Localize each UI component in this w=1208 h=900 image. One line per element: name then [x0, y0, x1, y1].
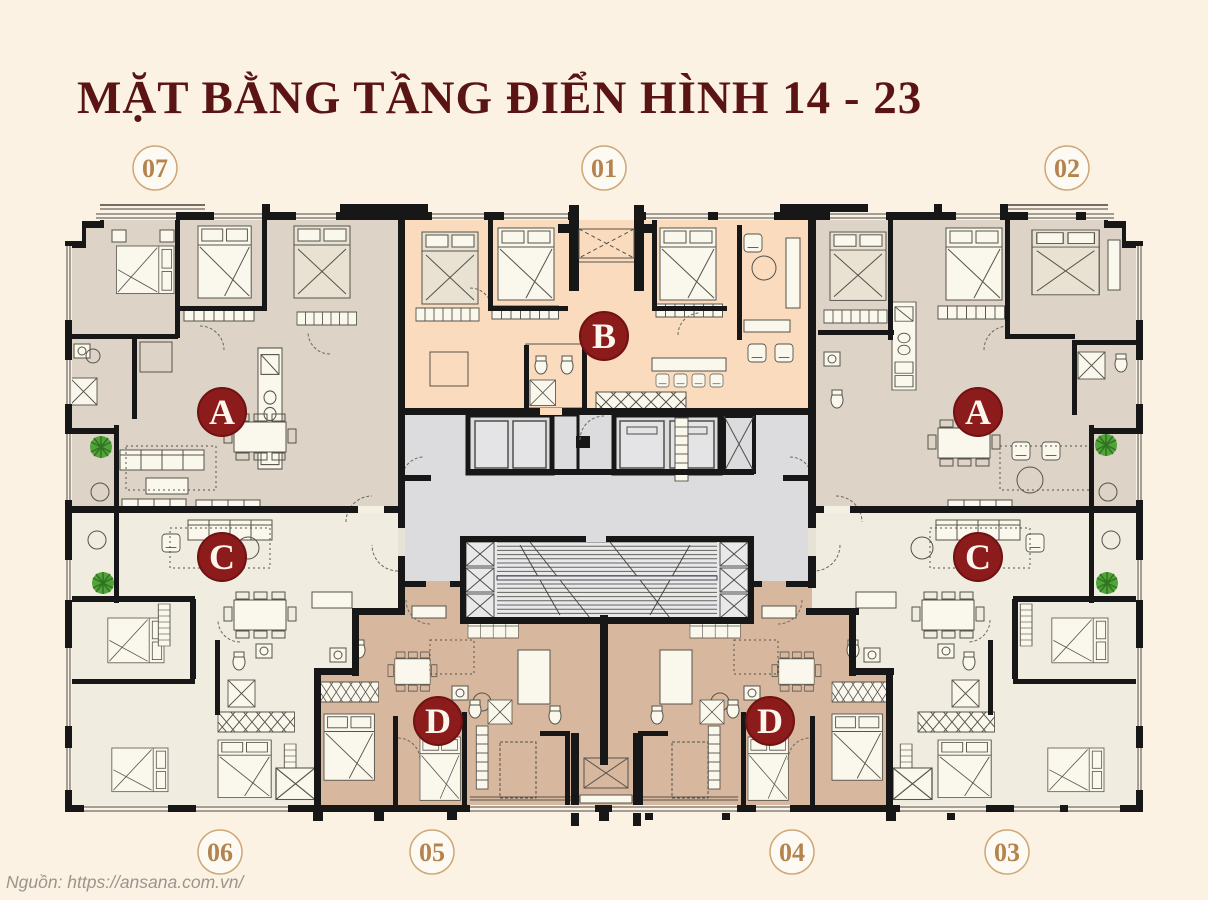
svg-text:D: D	[757, 701, 783, 741]
svg-text:07: 07	[142, 154, 168, 183]
svg-text:B: B	[592, 316, 616, 356]
svg-text:06: 06	[207, 838, 233, 867]
svg-text:C: C	[209, 537, 235, 577]
svg-text:02: 02	[1054, 154, 1080, 183]
svg-text:01: 01	[591, 154, 617, 183]
svg-text:05: 05	[419, 838, 445, 867]
svg-text:A: A	[209, 392, 235, 432]
svg-text:Nguồn: https://ansana.com.vn/: Nguồn: https://ansana.com.vn/	[6, 872, 245, 892]
svg-text:C: C	[965, 537, 991, 577]
svg-text:03: 03	[994, 838, 1020, 867]
svg-text:A: A	[965, 392, 991, 432]
svg-text:04: 04	[779, 838, 805, 867]
svg-text:MẶT BẰNG TẦNG ĐIỂN HÌNH 14 - 2: MẶT BẰNG TẦNG ĐIỂN HÌNH 14 - 23	[77, 71, 922, 124]
svg-text:D: D	[425, 701, 451, 741]
